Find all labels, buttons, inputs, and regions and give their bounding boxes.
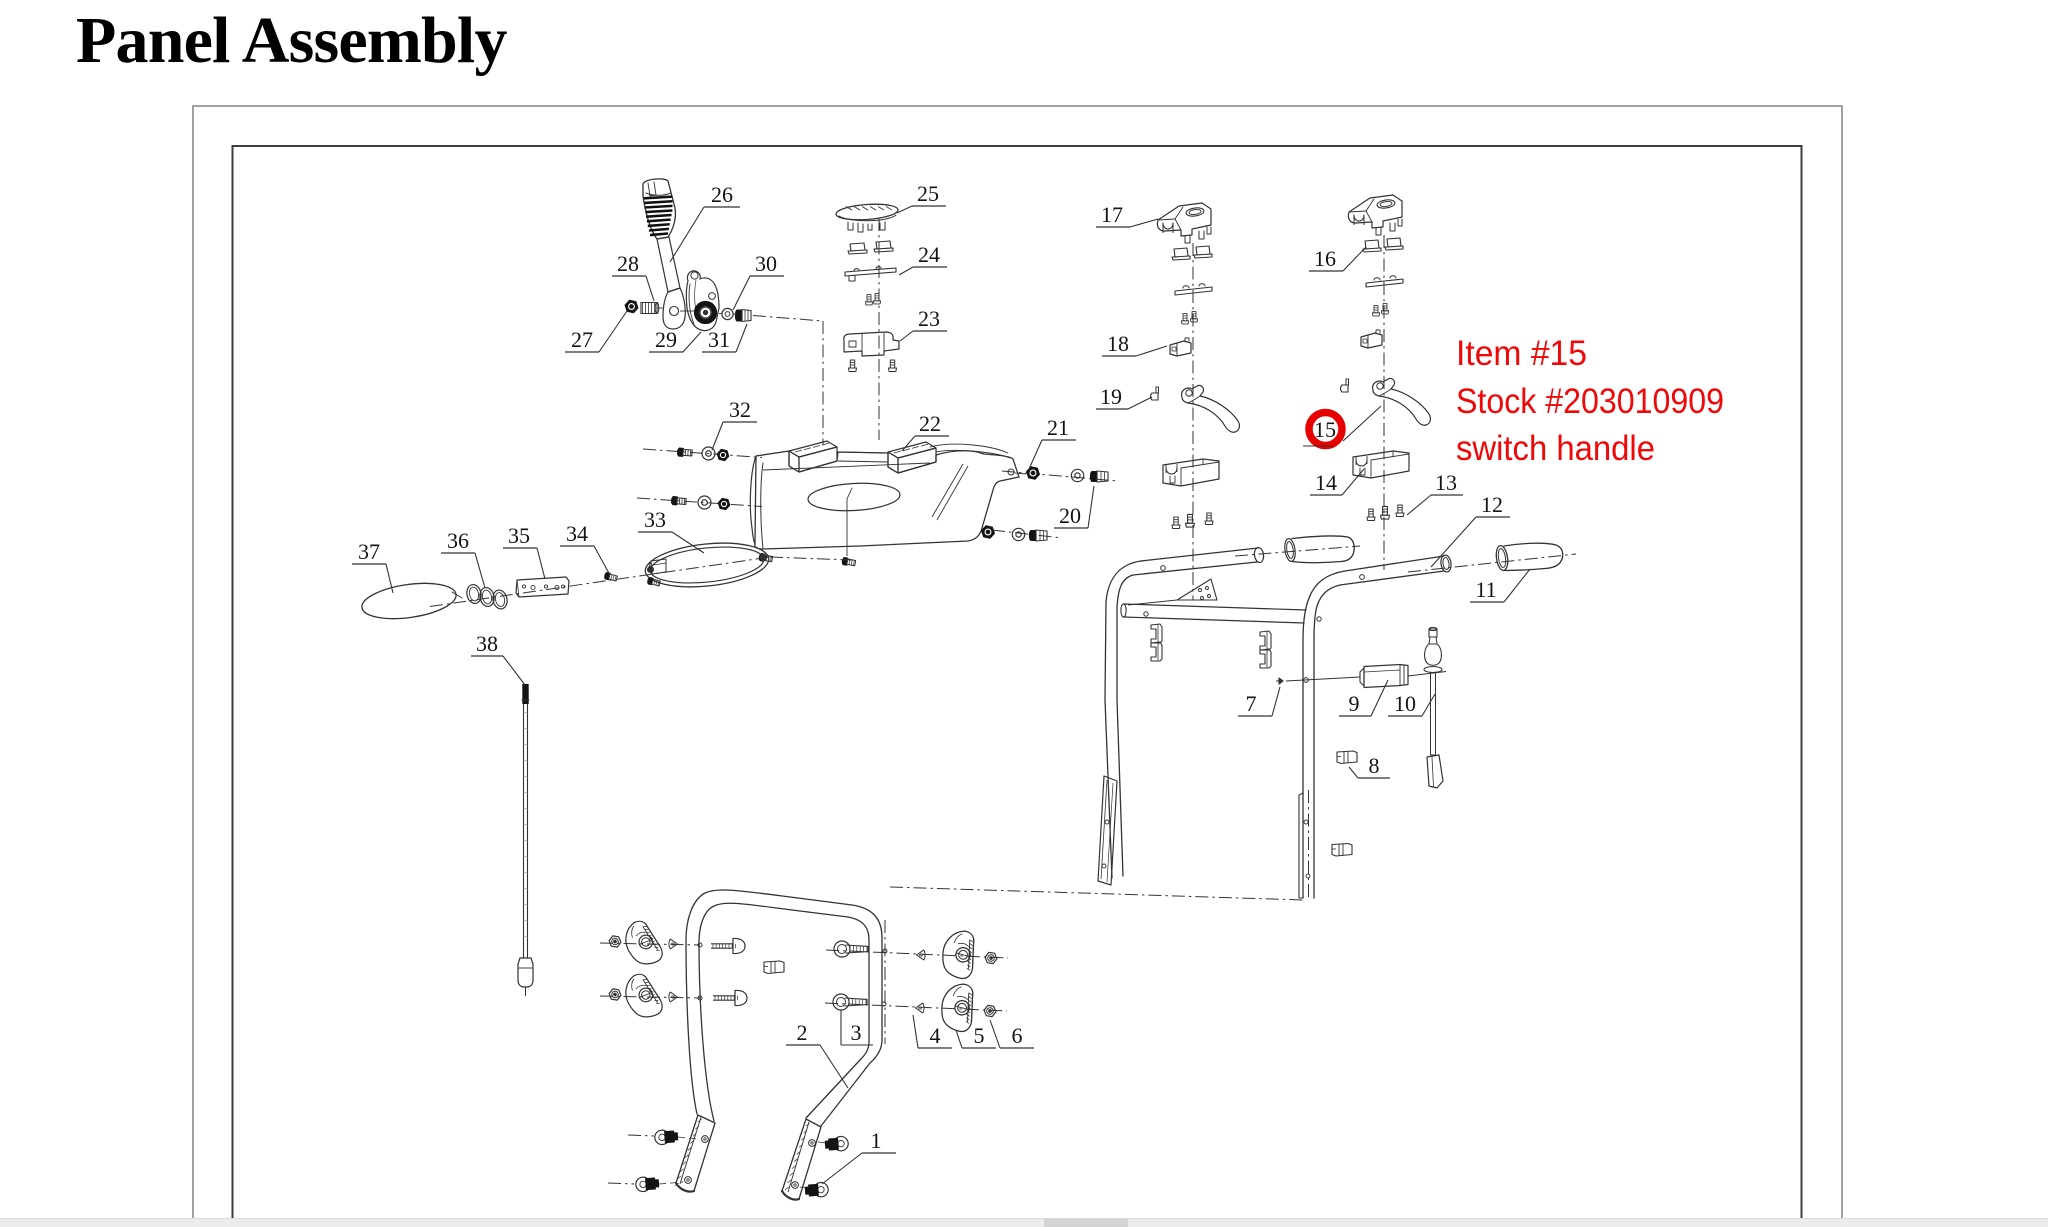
svg-text:13: 13 bbox=[1435, 470, 1457, 495]
svg-text:10: 10 bbox=[1394, 691, 1416, 716]
svg-text:22: 22 bbox=[919, 411, 941, 436]
svg-text:6: 6 bbox=[1012, 1023, 1023, 1048]
svg-text:30: 30 bbox=[755, 251, 777, 276]
svg-text:23: 23 bbox=[918, 306, 940, 331]
svg-text:2: 2 bbox=[797, 1020, 808, 1045]
svg-text:12: 12 bbox=[1481, 492, 1503, 517]
svg-text:1: 1 bbox=[871, 1128, 882, 1153]
svg-text:38: 38 bbox=[476, 631, 498, 656]
svg-text:26: 26 bbox=[711, 182, 733, 207]
svg-text:27: 27 bbox=[571, 327, 593, 352]
svg-text:9: 9 bbox=[1349, 691, 1360, 716]
svg-text:34: 34 bbox=[566, 521, 588, 546]
svg-text:17: 17 bbox=[1101, 202, 1123, 227]
svg-text:32: 32 bbox=[729, 397, 751, 422]
svg-text:4: 4 bbox=[930, 1023, 941, 1048]
svg-text:33: 33 bbox=[644, 507, 666, 532]
svg-text:21: 21 bbox=[1047, 415, 1069, 440]
svg-text:3: 3 bbox=[851, 1020, 862, 1045]
svg-text:25: 25 bbox=[917, 181, 939, 206]
svg-text:8: 8 bbox=[1369, 753, 1380, 778]
svg-text:Stock #203010909: Stock #203010909 bbox=[1456, 381, 1724, 421]
svg-text:7: 7 bbox=[1246, 691, 1257, 716]
svg-text:18: 18 bbox=[1107, 331, 1129, 356]
svg-text:Item #15: Item #15 bbox=[1456, 333, 1587, 373]
svg-text:14: 14 bbox=[1315, 470, 1337, 495]
svg-text:36: 36 bbox=[447, 528, 469, 553]
svg-text:37: 37 bbox=[358, 539, 380, 564]
svg-text:29: 29 bbox=[655, 327, 677, 352]
svg-text:15: 15 bbox=[1314, 417, 1336, 442]
svg-text:Panel Assembly: Panel Assembly bbox=[76, 4, 507, 77]
svg-text:19: 19 bbox=[1100, 384, 1122, 409]
svg-text:switch handle: switch handle bbox=[1456, 428, 1655, 468]
svg-text:16: 16 bbox=[1314, 246, 1336, 271]
svg-text:28: 28 bbox=[617, 251, 639, 276]
svg-text:31: 31 bbox=[708, 327, 730, 352]
svg-text:24: 24 bbox=[918, 242, 940, 267]
svg-text:5: 5 bbox=[974, 1023, 985, 1048]
svg-text:11: 11 bbox=[1475, 577, 1496, 602]
svg-text:20: 20 bbox=[1059, 503, 1081, 528]
svg-text:35: 35 bbox=[508, 523, 530, 548]
